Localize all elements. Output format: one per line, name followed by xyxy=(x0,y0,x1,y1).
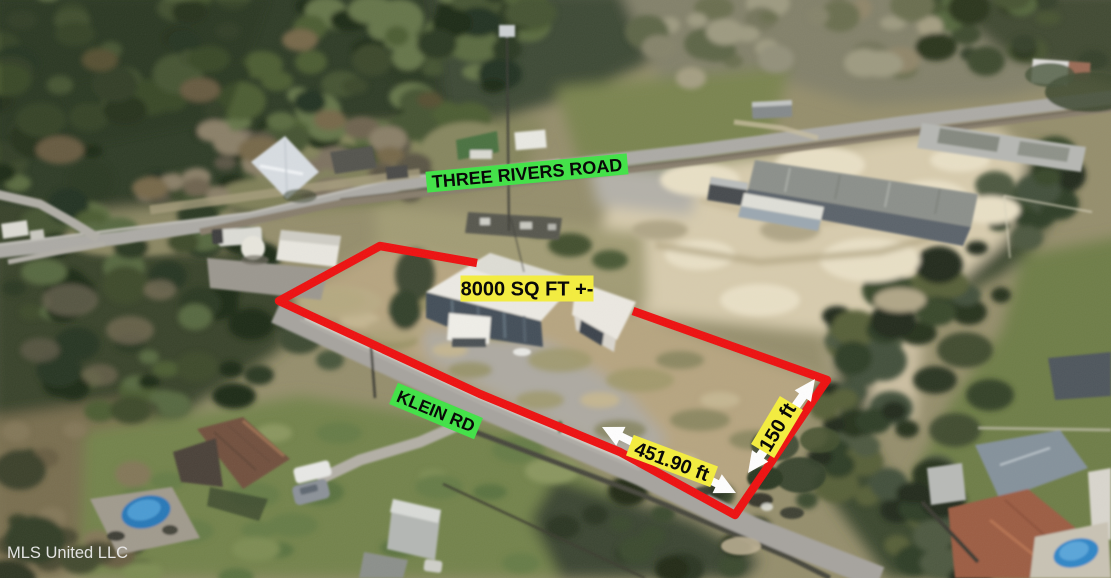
svg-text:MLS United LLC: MLS United LLC xyxy=(7,544,128,562)
